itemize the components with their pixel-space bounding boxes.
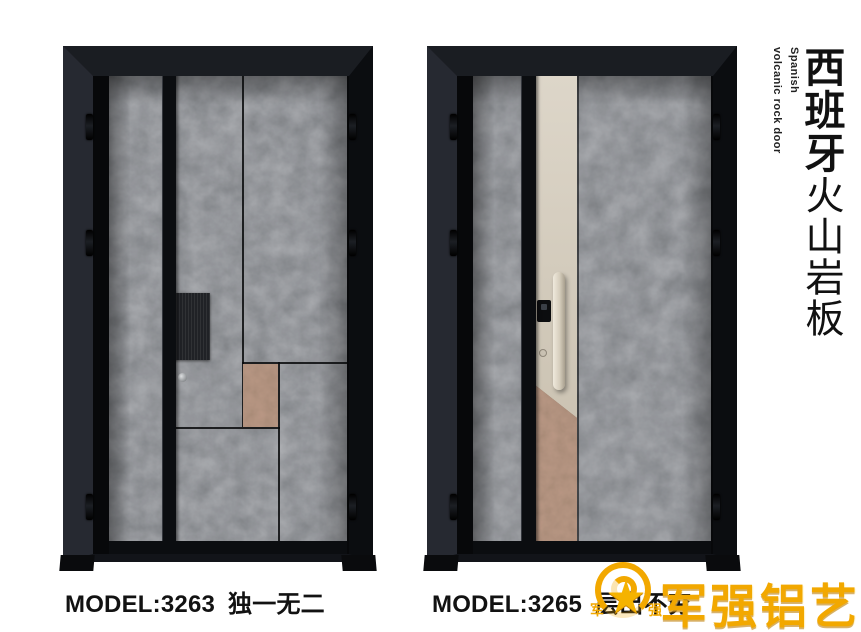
smart-lock xyxy=(537,300,551,322)
hinge-icon xyxy=(450,114,457,140)
ribbed-inlay-panel xyxy=(173,293,210,360)
catalog-page: Spanishvolcanic rock door 西班牙火山岩板 MODEL:… xyxy=(0,0,861,632)
door-pull-bar xyxy=(162,76,176,554)
brand-name: 军强铝艺 xyxy=(660,568,860,632)
hinge-icon xyxy=(349,114,356,140)
badge-char-left: 军 xyxy=(590,600,604,620)
title-cn-bold: 西班牙 xyxy=(798,46,844,175)
lock-cylinder-icon xyxy=(178,373,187,382)
door-handle xyxy=(553,272,565,390)
panel-seam xyxy=(577,76,579,545)
panel-seam xyxy=(175,427,280,429)
hinge-icon xyxy=(713,494,720,520)
model-label-3263: MODEL:3263独一无二 xyxy=(65,584,325,619)
bottom-rail xyxy=(109,541,347,554)
hinge-icon xyxy=(86,230,93,256)
hinge-icon xyxy=(713,230,720,256)
model-number: MODEL:3265 xyxy=(432,591,582,618)
hinge-icon xyxy=(713,114,720,140)
leaf-shading xyxy=(473,76,711,554)
subtitle-english: Spanishvolcanic rock door xyxy=(768,47,802,154)
door-image-3263 xyxy=(63,46,373,562)
hinge-icon xyxy=(349,494,356,520)
page-title: 西班牙火山岩板 xyxy=(799,46,842,339)
hinge-icon xyxy=(86,494,93,520)
door-leaf xyxy=(473,76,711,554)
leaf-shading xyxy=(109,76,347,554)
thumbturn-icon xyxy=(539,349,547,357)
hinge-icon xyxy=(450,494,457,520)
rust-accent-panel xyxy=(243,364,278,427)
star-icon: ★ xyxy=(605,574,646,620)
frame-foot xyxy=(59,555,94,571)
door-leaf xyxy=(109,76,347,554)
model-name: 独一无二 xyxy=(228,591,325,618)
subtitle-en-line2: volcanic rock door xyxy=(771,47,783,154)
hinge-icon xyxy=(86,114,93,140)
frame-foot xyxy=(341,555,376,571)
frame-foot xyxy=(423,555,458,571)
brand-logo: ★ 军 强 军强铝艺 xyxy=(592,560,861,632)
model-number: MODEL:3263 xyxy=(65,591,215,618)
door-image-3265 xyxy=(427,46,737,562)
hinge-icon xyxy=(450,230,457,256)
panel-seam xyxy=(278,362,280,550)
bottom-rail xyxy=(473,541,711,554)
hinge-icon xyxy=(349,230,356,256)
lock-screen-icon xyxy=(541,304,547,310)
brand-badge-icon: ★ 军 强 xyxy=(592,560,660,630)
title-cn-regular: 火山岩板 xyxy=(800,175,843,339)
door-pull-bar xyxy=(521,76,536,554)
